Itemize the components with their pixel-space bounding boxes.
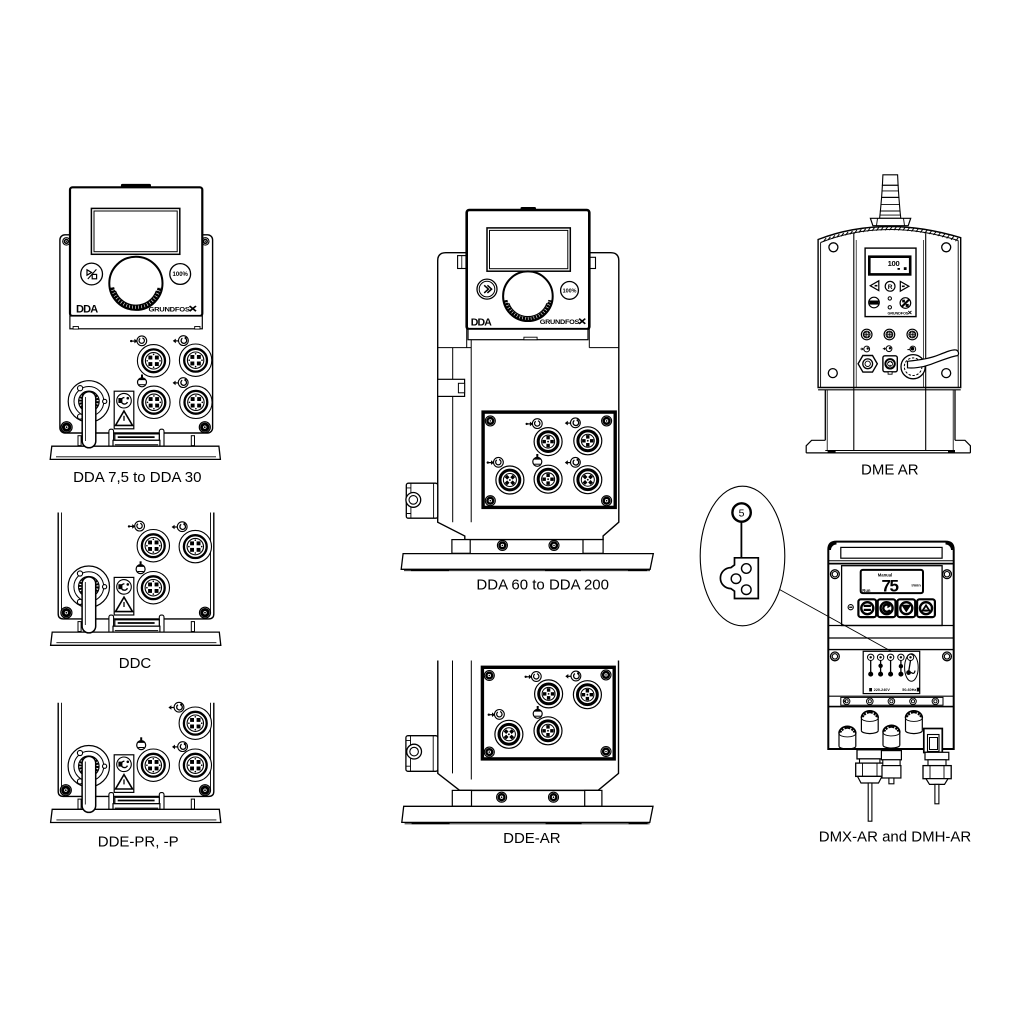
- svg-text:50-60Hz: 50-60Hz: [902, 688, 916, 692]
- svg-text:DDE-AR: DDE-AR: [503, 830, 561, 847]
- svg-text:DDE-PR, -P: DDE-PR, -P: [98, 833, 179, 850]
- svg-text:DDA 60 to DDA 200: DDA 60 to DDA 200: [476, 577, 609, 594]
- svg-text:Run: Run: [862, 588, 871, 593]
- svg-text:5: 5: [739, 507, 745, 519]
- svg-text:100%: 100%: [563, 288, 577, 294]
- svg-text:R: R: [888, 284, 893, 291]
- svg-text:100: 100: [888, 259, 900, 268]
- svg-text:75: 75: [881, 577, 898, 596]
- svg-text:220-240V: 220-240V: [874, 688, 891, 692]
- svg-text:DMX-AR and DMH-AR: DMX-AR and DMH-AR: [819, 829, 972, 846]
- svg-text:DDC: DDC: [119, 655, 152, 672]
- svg-text:100%: 100%: [173, 272, 189, 278]
- svg-text:l/min: l/min: [912, 583, 922, 588]
- svg-text:DDA: DDA: [471, 316, 493, 328]
- svg-text:DDA 7,5 to DDA 30: DDA 7,5 to DDA 30: [73, 469, 201, 486]
- svg-text:DDA: DDA: [76, 304, 98, 316]
- svg-text:DME AR: DME AR: [861, 462, 919, 479]
